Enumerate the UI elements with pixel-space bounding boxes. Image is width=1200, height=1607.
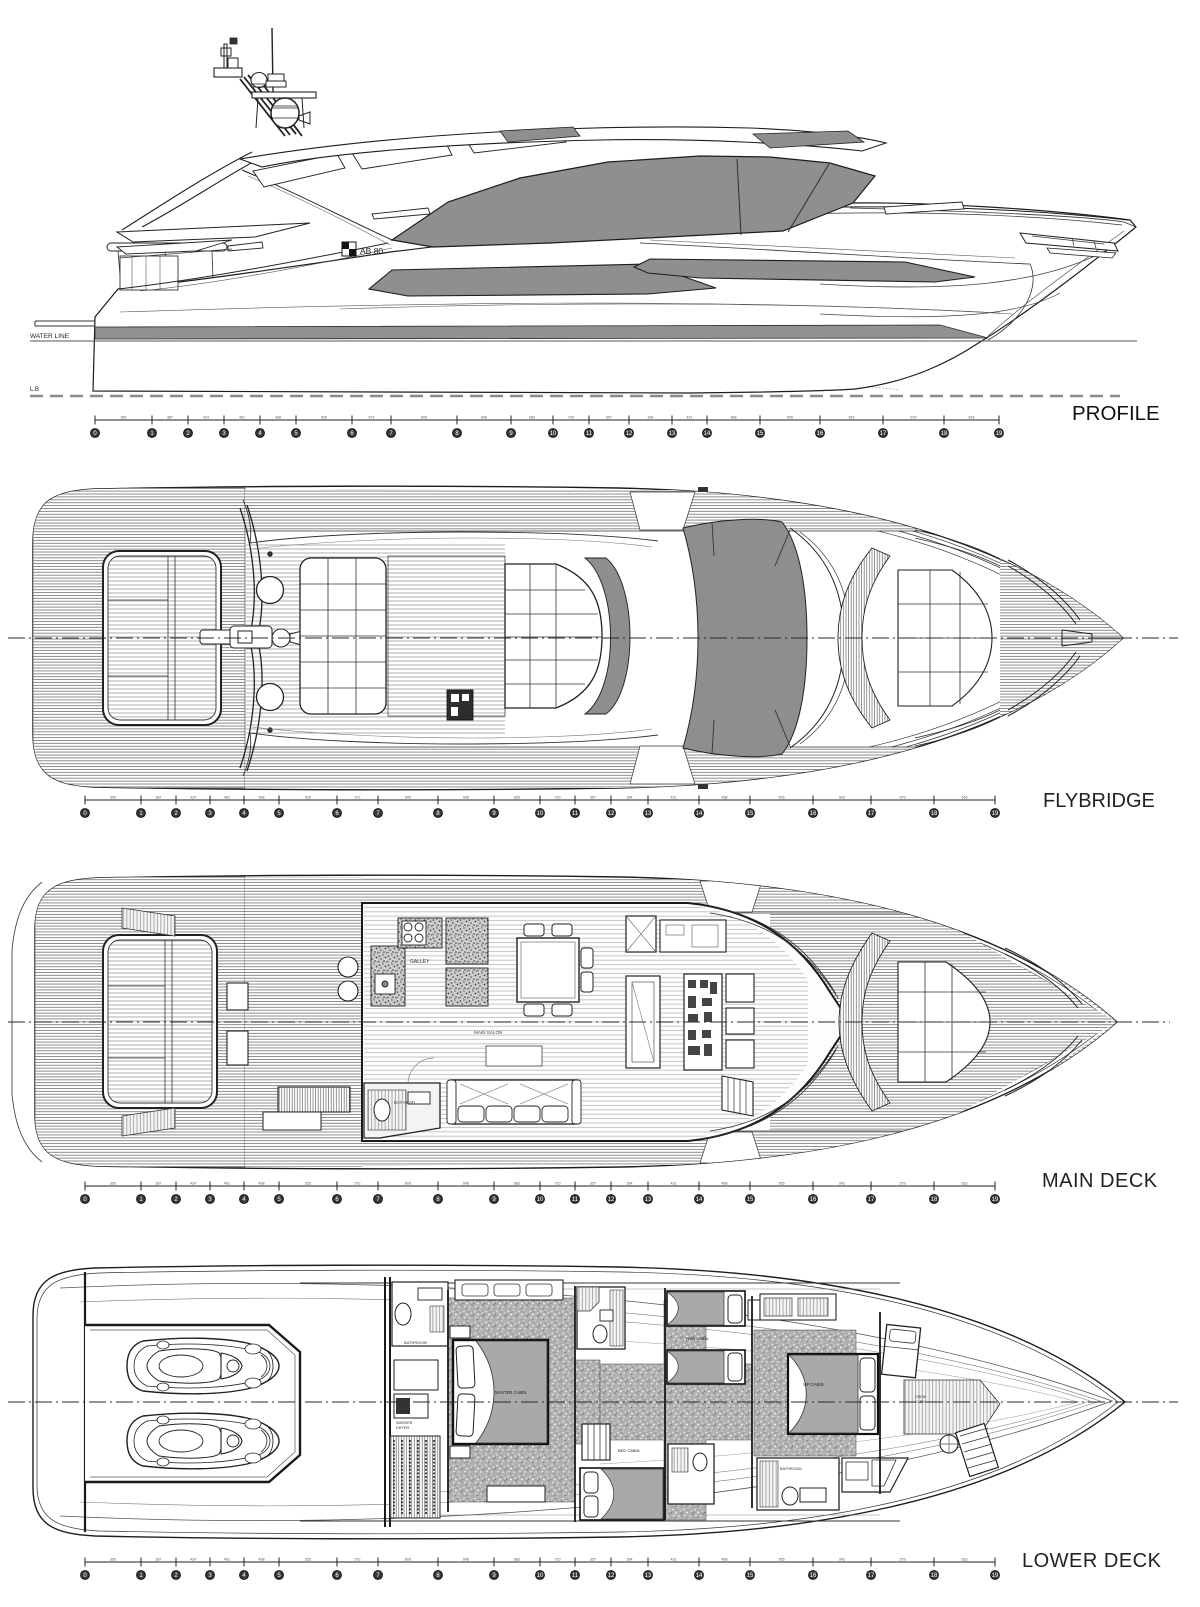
svg-text:394: 394 bbox=[627, 796, 633, 800]
svg-text:BATHROOM: BATHROOM bbox=[404, 1340, 427, 1345]
svg-text:19: 19 bbox=[992, 1573, 999, 1579]
svg-text:579: 579 bbox=[911, 416, 917, 420]
svg-text:498: 498 bbox=[259, 1182, 265, 1186]
svg-text:GALLEY: GALLEY bbox=[410, 959, 430, 965]
svg-text:387: 387 bbox=[156, 1182, 162, 1186]
svg-text:609: 609 bbox=[405, 1558, 411, 1562]
svg-text:MAIN SALON: MAIN SALON bbox=[474, 1030, 502, 1035]
svg-text:12: 12 bbox=[608, 1197, 615, 1203]
svg-text:461: 461 bbox=[224, 796, 230, 800]
svg-text:505: 505 bbox=[779, 1558, 785, 1562]
svg-text:13: 13 bbox=[645, 1197, 652, 1203]
svg-text:572: 572 bbox=[355, 1558, 361, 1562]
svg-text:424: 424 bbox=[190, 796, 196, 800]
svg-text:BATHROOM: BATHROOM bbox=[780, 1467, 802, 1471]
svg-text:542: 542 bbox=[839, 1558, 845, 1562]
svg-text:17: 17 bbox=[868, 1197, 875, 1203]
svg-text:11: 11 bbox=[572, 811, 579, 817]
svg-text:535: 535 bbox=[305, 1182, 311, 1186]
svg-text:394: 394 bbox=[648, 416, 654, 420]
svg-text:14: 14 bbox=[704, 431, 711, 437]
svg-text:468: 468 bbox=[731, 416, 737, 420]
svg-text:12: 12 bbox=[608, 811, 615, 817]
svg-text:15: 15 bbox=[747, 1573, 754, 1579]
svg-text:542: 542 bbox=[839, 1182, 845, 1186]
svg-text:10: 10 bbox=[537, 1197, 544, 1203]
svg-text:LOWER DECK: LOWER DECK bbox=[1022, 1550, 1162, 1572]
svg-text:387: 387 bbox=[167, 416, 173, 420]
svg-text:19: 19 bbox=[992, 1197, 999, 1203]
svg-text:646: 646 bbox=[463, 796, 469, 800]
svg-text:616: 616 bbox=[962, 1558, 968, 1562]
svg-text:720: 720 bbox=[568, 416, 574, 420]
svg-text:461: 461 bbox=[224, 1182, 230, 1186]
svg-text:13: 13 bbox=[645, 1573, 652, 1579]
svg-text:542: 542 bbox=[839, 796, 845, 800]
svg-text:TWIN CABIN: TWIN CABIN bbox=[685, 1336, 709, 1341]
svg-text:19: 19 bbox=[996, 431, 1003, 437]
svg-text:350: 350 bbox=[121, 416, 127, 420]
svg-text:461: 461 bbox=[239, 416, 245, 420]
svg-text:579: 579 bbox=[900, 1182, 906, 1186]
svg-text:16: 16 bbox=[810, 1573, 817, 1579]
svg-text:11: 11 bbox=[572, 1573, 579, 1579]
svg-text:720: 720 bbox=[555, 1182, 561, 1186]
svg-text:498: 498 bbox=[259, 1558, 265, 1562]
svg-text:17: 17 bbox=[868, 1573, 875, 1579]
svg-text:646: 646 bbox=[463, 1182, 469, 1186]
svg-text:12: 12 bbox=[608, 1573, 615, 1579]
svg-text:PROFILE: PROFILE bbox=[1072, 402, 1160, 425]
svg-text:424: 424 bbox=[190, 1182, 196, 1186]
svg-text:468: 468 bbox=[722, 1182, 728, 1186]
svg-text:498: 498 bbox=[259, 796, 265, 800]
svg-text:683: 683 bbox=[514, 796, 520, 800]
svg-text:609: 609 bbox=[405, 796, 411, 800]
svg-text:424: 424 bbox=[203, 416, 209, 420]
svg-text:MASTER CABIN: MASTER CABIN bbox=[495, 1390, 526, 1395]
svg-text:350: 350 bbox=[110, 796, 116, 800]
svg-text:18: 18 bbox=[931, 1197, 938, 1203]
svg-text:394: 394 bbox=[627, 1558, 633, 1562]
svg-text:12: 12 bbox=[626, 431, 633, 437]
svg-text:MAIN DECK: MAIN DECK bbox=[1042, 1170, 1158, 1192]
svg-text:WASHER: WASHER bbox=[396, 1421, 413, 1425]
svg-text:DAY HEAD: DAY HEAD bbox=[394, 1100, 415, 1105]
svg-text:579: 579 bbox=[900, 1558, 906, 1562]
svg-text:468: 468 bbox=[722, 796, 728, 800]
svg-text:18: 18 bbox=[941, 431, 948, 437]
svg-text:535: 535 bbox=[321, 416, 327, 420]
svg-text:14: 14 bbox=[696, 1197, 703, 1203]
svg-text:17: 17 bbox=[880, 431, 887, 437]
svg-text:357: 357 bbox=[590, 1558, 596, 1562]
svg-text:616: 616 bbox=[962, 1182, 968, 1186]
svg-text:10: 10 bbox=[537, 811, 544, 817]
svg-text:13: 13 bbox=[669, 431, 676, 437]
svg-text:FLYBRIDGE: FLYBRIDGE bbox=[1043, 790, 1155, 812]
svg-text:19: 19 bbox=[992, 811, 999, 817]
svg-text:535: 535 bbox=[305, 796, 311, 800]
svg-text:WATER LINE: WATER LINE bbox=[30, 333, 70, 340]
svg-text:15: 15 bbox=[747, 1197, 754, 1203]
svg-text:646: 646 bbox=[481, 416, 487, 420]
svg-text:AB 80: AB 80 bbox=[360, 246, 383, 256]
svg-text:646: 646 bbox=[463, 1558, 469, 1562]
svg-text:DRYER: DRYER bbox=[396, 1426, 409, 1430]
svg-text:15: 15 bbox=[747, 811, 754, 817]
svg-text:394: 394 bbox=[627, 1182, 633, 1186]
svg-text:542: 542 bbox=[849, 416, 855, 420]
svg-text:387: 387 bbox=[156, 796, 162, 800]
svg-text:16: 16 bbox=[810, 1197, 817, 1203]
svg-text:431: 431 bbox=[687, 416, 693, 420]
svg-text:431: 431 bbox=[671, 1182, 677, 1186]
svg-text:14: 14 bbox=[696, 811, 703, 817]
svg-text:505: 505 bbox=[779, 796, 785, 800]
svg-text:357: 357 bbox=[590, 1182, 596, 1186]
svg-text:572: 572 bbox=[355, 796, 361, 800]
svg-text:VIP CABIN: VIP CABIN bbox=[803, 1382, 824, 1387]
svg-text:616: 616 bbox=[969, 416, 975, 420]
svg-text:10: 10 bbox=[550, 431, 557, 437]
svg-text:14: 14 bbox=[696, 1573, 703, 1579]
svg-text:11: 11 bbox=[586, 431, 593, 437]
svg-text:505: 505 bbox=[779, 1182, 785, 1186]
svg-text:431: 431 bbox=[671, 1558, 677, 1562]
svg-text:609: 609 bbox=[421, 416, 427, 420]
svg-text:L.B: L.B bbox=[30, 387, 39, 393]
svg-text:572: 572 bbox=[355, 1182, 361, 1186]
svg-text:572: 572 bbox=[369, 416, 375, 420]
svg-text:616: 616 bbox=[962, 796, 968, 800]
svg-text:720: 720 bbox=[555, 796, 561, 800]
svg-text:10: 10 bbox=[537, 1573, 544, 1579]
svg-text:15: 15 bbox=[757, 431, 764, 437]
svg-text:18: 18 bbox=[931, 1573, 938, 1579]
svg-text:431: 431 bbox=[671, 796, 677, 800]
svg-text:468: 468 bbox=[722, 1558, 728, 1562]
svg-text:357: 357 bbox=[606, 416, 612, 420]
svg-text:17: 17 bbox=[868, 811, 875, 817]
svg-text:350: 350 bbox=[110, 1558, 116, 1562]
svg-text:11: 11 bbox=[572, 1197, 579, 1203]
svg-text:461: 461 bbox=[224, 1558, 230, 1562]
svg-text:13: 13 bbox=[645, 811, 652, 817]
svg-text:720: 720 bbox=[555, 1558, 561, 1562]
svg-text:609: 609 bbox=[405, 1182, 411, 1186]
svg-text:357: 357 bbox=[590, 796, 596, 800]
svg-text:683: 683 bbox=[514, 1558, 520, 1562]
svg-text:350: 350 bbox=[110, 1182, 116, 1186]
svg-text:505: 505 bbox=[787, 416, 793, 420]
svg-text:16: 16 bbox=[810, 811, 817, 817]
svg-text:683: 683 bbox=[529, 416, 535, 420]
svg-text:387: 387 bbox=[156, 1558, 162, 1562]
svg-text:18: 18 bbox=[931, 811, 938, 817]
svg-text:683: 683 bbox=[514, 1182, 520, 1186]
svg-text:CREW: CREW bbox=[915, 1395, 927, 1399]
svg-text:424: 424 bbox=[190, 1558, 196, 1562]
svg-text:16: 16 bbox=[817, 431, 824, 437]
svg-text:535: 535 bbox=[305, 1558, 311, 1562]
svg-text:BED CABIN: BED CABIN bbox=[618, 1448, 640, 1453]
svg-text:498: 498 bbox=[275, 416, 281, 420]
svg-text:579: 579 bbox=[900, 796, 906, 800]
